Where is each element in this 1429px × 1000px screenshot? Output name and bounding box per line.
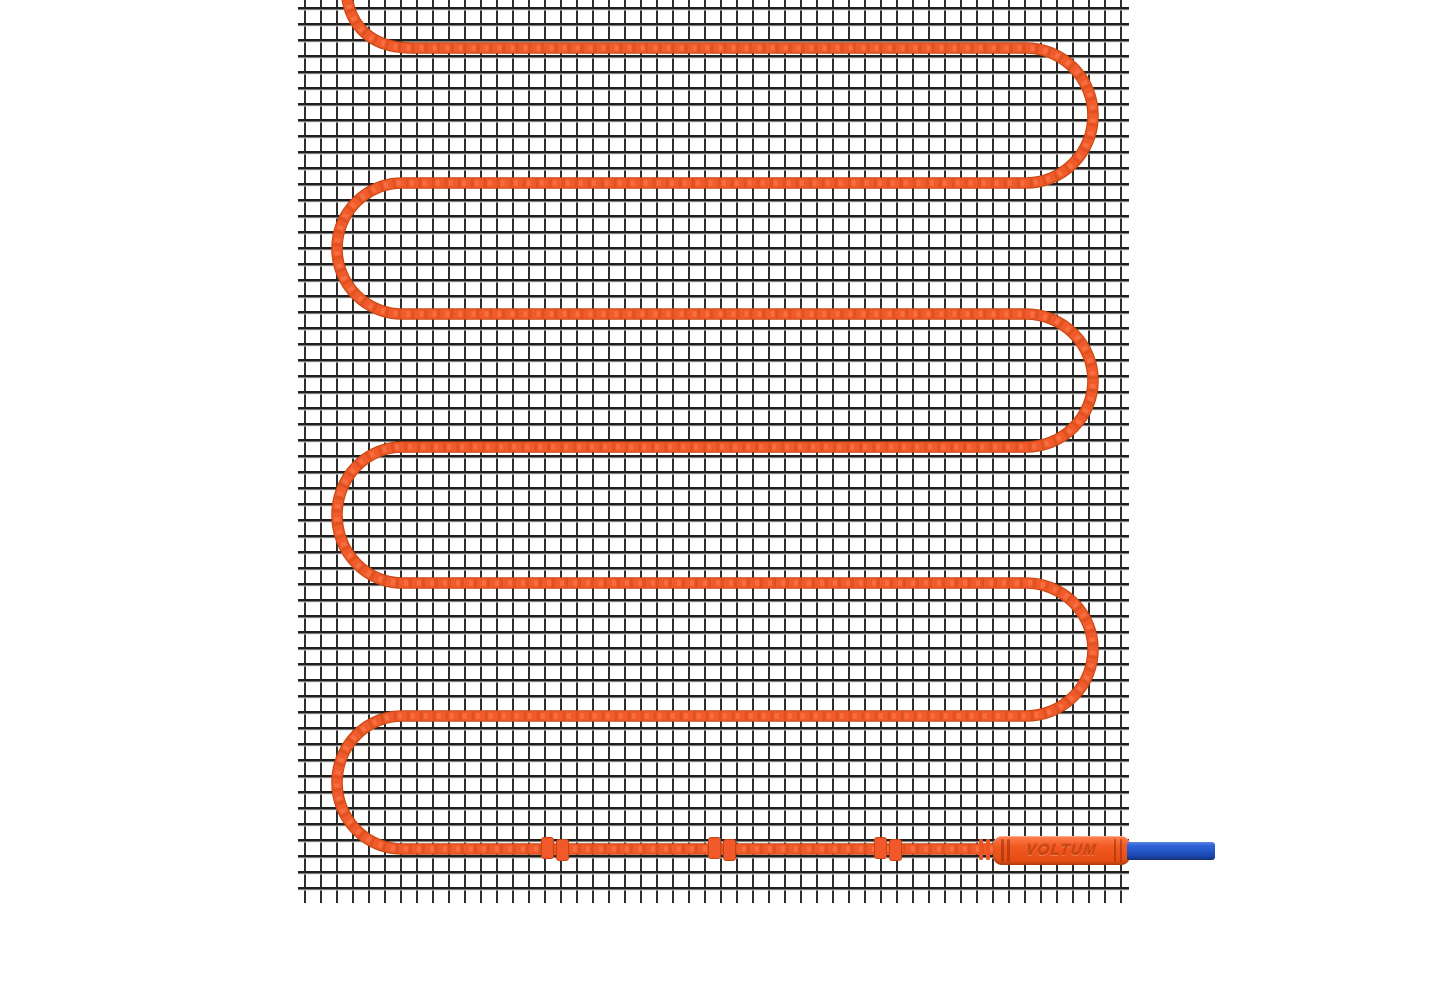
cable-clip-block [875, 838, 887, 859]
cold-lead-cable [1127, 842, 1215, 860]
crimp-collar-bar [986, 839, 990, 860]
brand-label: VOLTUM [1025, 842, 1098, 859]
crimp-collar-bar [979, 839, 983, 860]
connector-rib [1120, 839, 1123, 862]
cable-clip-block [724, 840, 736, 861]
connector-rib [1007, 839, 1010, 862]
cable-clip-block [557, 840, 569, 861]
heating-cable-outline [337, 0, 1093, 849]
cable-clip-block [709, 838, 721, 859]
cable-clip-block [542, 838, 554, 859]
voltum-connector: VOLTUM [993, 836, 1130, 865]
heating-mat-product-image: VOLTUM [0, 0, 1429, 1000]
cable-clip-block [890, 840, 902, 861]
connector-rib [1114, 839, 1117, 862]
connector-rib [1001, 839, 1004, 862]
